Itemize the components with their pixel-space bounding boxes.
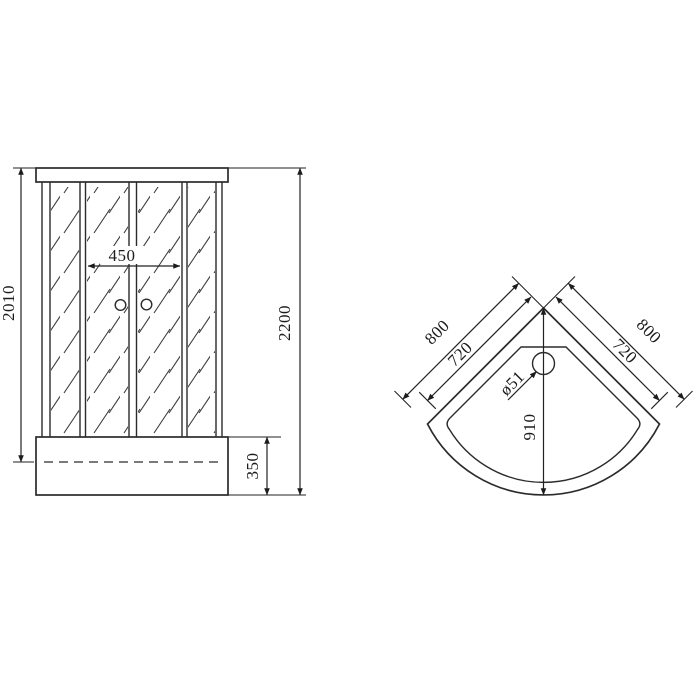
glass-pane-door-left xyxy=(87,187,128,435)
dim-label-800-right: 800 xyxy=(633,315,666,348)
ext-line-apex xyxy=(544,277,576,309)
glass-pane-door-right xyxy=(138,187,181,435)
dim-label-720-right: 720 xyxy=(609,335,642,368)
dim-tray-height: 350 xyxy=(228,437,281,495)
dim-glass-height: 2010 xyxy=(0,168,36,462)
dim-label-350: 350 xyxy=(243,453,262,480)
dim-label-2200: 2200 xyxy=(275,305,294,341)
ext-line-apex xyxy=(512,277,544,309)
tray-base xyxy=(36,437,228,495)
dim-label-910: 910 xyxy=(520,414,539,441)
drawing-canvas: 450 2010 2200 350 xyxy=(0,0,700,700)
top-view: 800 800 720 720 910 ø51 xyxy=(395,277,693,496)
front-view: 450 2010 2200 350 xyxy=(0,168,306,495)
dim-label-2010: 2010 xyxy=(0,285,18,321)
technical-drawing: 450 2010 2200 350 xyxy=(0,0,700,700)
dim-label-450: 450 xyxy=(109,246,136,265)
top-bar xyxy=(36,168,228,182)
glass-pane-right-fixed xyxy=(188,187,215,435)
glass-pane-left-fixed xyxy=(51,187,79,435)
dim-label-720-left: 720 xyxy=(444,338,477,371)
dim-label-800-left: 800 xyxy=(421,316,454,349)
